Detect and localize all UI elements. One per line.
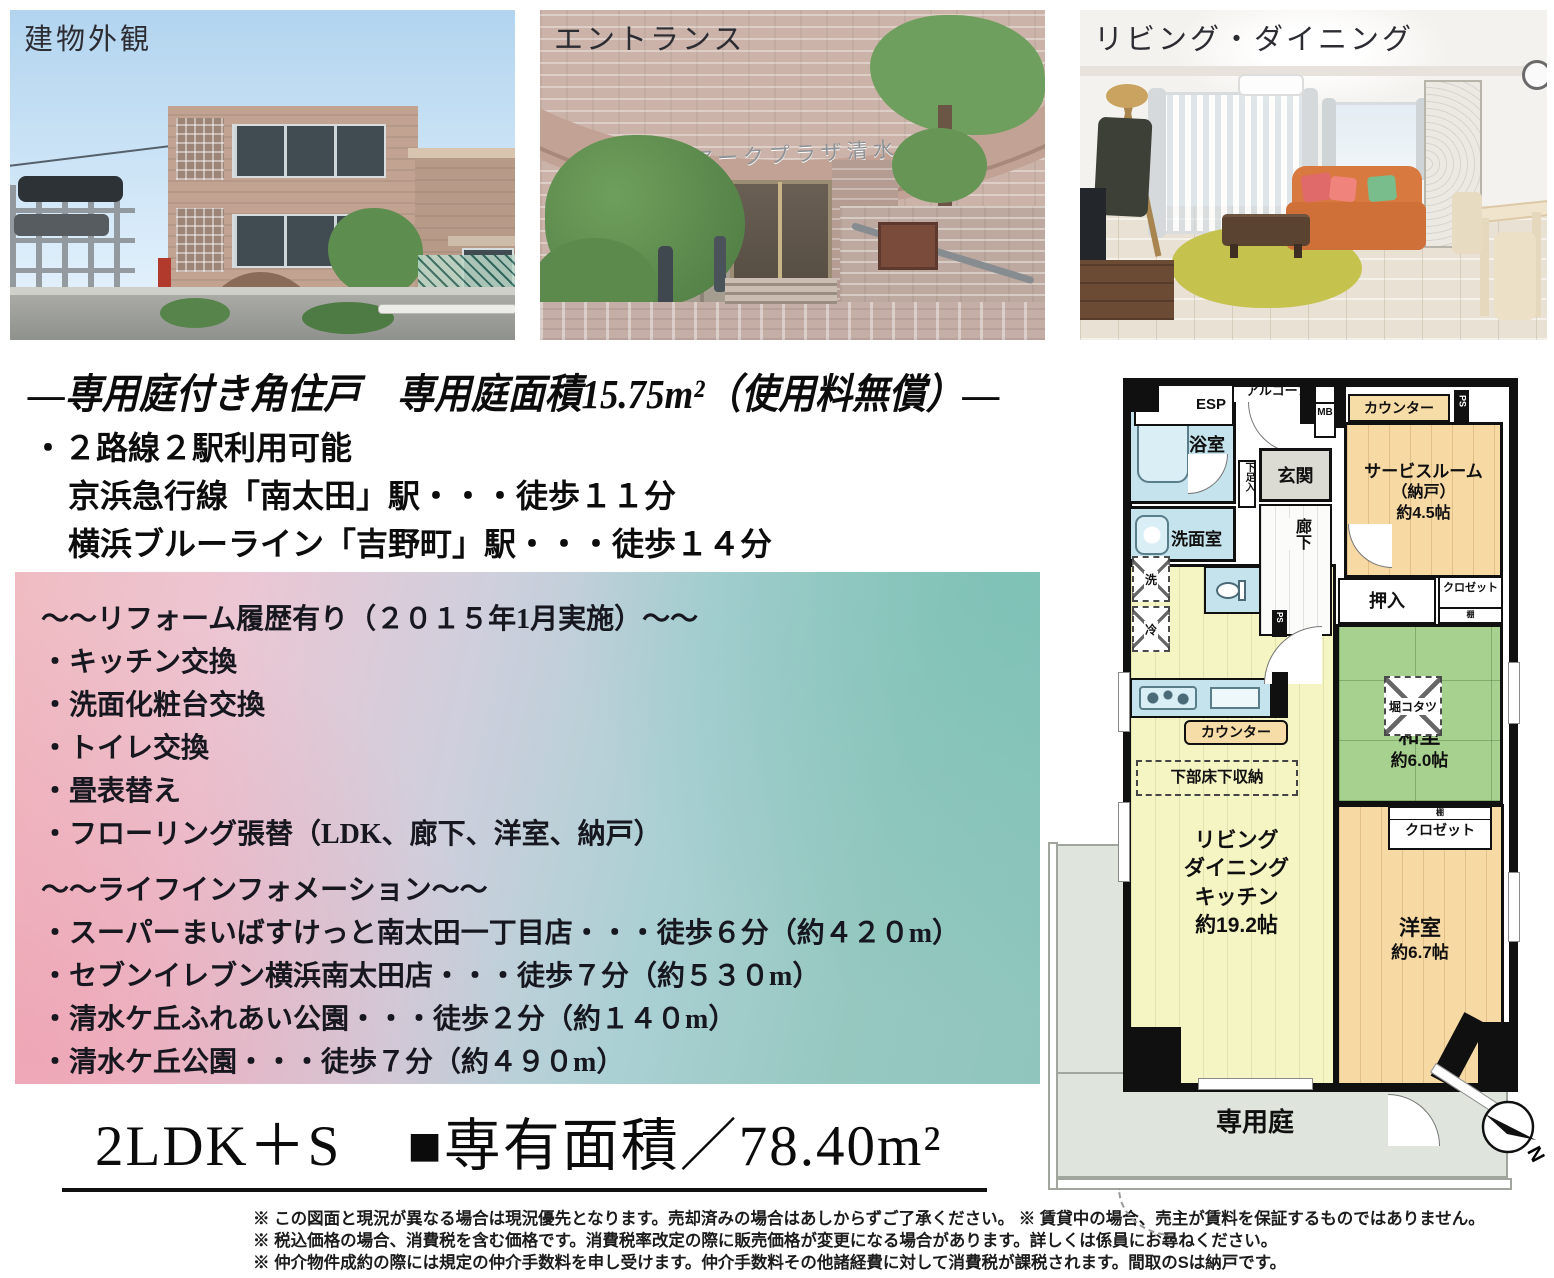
lattice-panel bbox=[176, 118, 224, 180]
steps bbox=[725, 278, 837, 304]
hat bbox=[1106, 84, 1148, 108]
bush bbox=[160, 298, 230, 328]
ldk-label: ダイニング bbox=[1149, 855, 1324, 883]
window-gap bbox=[1118, 672, 1130, 732]
dining-chair bbox=[1452, 192, 1482, 254]
wall-segment bbox=[1478, 1022, 1518, 1089]
oshiire-closet: 押入 bbox=[1338, 578, 1436, 624]
compass: N bbox=[1476, 1098, 1546, 1168]
window-gap bbox=[1508, 872, 1520, 942]
reform-item: ・フローリング張替（LDK、廊下、洋室、納戸） bbox=[41, 813, 1040, 856]
guardrail bbox=[378, 304, 515, 314]
private-garden bbox=[1056, 844, 1126, 1090]
western-room-label: 洋室 bbox=[1339, 915, 1501, 942]
ldk-label: キッチン bbox=[1149, 884, 1324, 912]
closet-shelf: 棚 bbox=[1390, 808, 1490, 820]
access-info: ・２路線２駅利用可能 京浜急行線「南太田」駅・・・徒歩１１分 横浜ブルーライン「… bbox=[32, 424, 772, 568]
western-room-label: 約6.7帖 bbox=[1339, 942, 1501, 964]
room-entrance: 玄関 bbox=[1259, 448, 1332, 502]
wall-segment bbox=[1123, 378, 1159, 412]
sink-icon bbox=[1210, 687, 1260, 709]
toilet-tank-icon bbox=[1238, 580, 1246, 601]
parked-car bbox=[14, 214, 109, 236]
pipe-shaft: PS bbox=[1272, 610, 1287, 637]
wall-segment bbox=[1334, 378, 1346, 428]
fridge-space: 冷 bbox=[1132, 606, 1170, 652]
garden-label: 専用庭 bbox=[1216, 1102, 1294, 1139]
access-line: 横浜ブルーライン「吉野町」駅・・・徒歩１４分 bbox=[32, 520, 772, 568]
bush bbox=[892, 128, 987, 203]
wall-segment bbox=[1272, 672, 1288, 718]
life-title: ～～ライフインフォメーション～～ bbox=[41, 869, 1040, 912]
dining-chair bbox=[1494, 232, 1536, 320]
closet-lower: 棚 クロゼット bbox=[1388, 806, 1492, 850]
service-room-label: サービスルーム bbox=[1347, 461, 1500, 483]
shoe-box: 下足入 bbox=[1238, 460, 1256, 508]
cushion bbox=[1329, 176, 1357, 203]
closet-upper: クロゼット 棚 bbox=[1438, 576, 1503, 624]
kotatsu: 堀コタツ bbox=[1384, 676, 1442, 736]
meter-box: MB bbox=[1314, 402, 1336, 438]
reform-item: ・畳表替え bbox=[41, 770, 1040, 813]
wall-segment bbox=[1123, 1027, 1181, 1089]
kitchen-counter bbox=[1130, 678, 1272, 718]
ldk-label: 約19.2帖 bbox=[1149, 912, 1324, 940]
life-item: ・スーパーまいばすけっと南太田一丁目店・・・徒歩６分（約４２０m） bbox=[41, 912, 1040, 955]
reform-title: ～～リフォーム履歴有り（２０１５年1月実施）～～ bbox=[41, 598, 1040, 641]
disclaimer-line: ※ 税込価格の場合、消費税を含む価格です。消費税率改定の際に販売価格が変更になる… bbox=[253, 1230, 1485, 1252]
layout-type: 2LDK＋S bbox=[95, 1115, 341, 1178]
window-small bbox=[1330, 102, 1422, 174]
roof-eave bbox=[408, 148, 515, 158]
closet-shelf: 棚 bbox=[1440, 607, 1501, 622]
service-room-counter: カウンター bbox=[1348, 394, 1450, 422]
exclusive-area: ■専有面積／78.40m² bbox=[407, 1115, 942, 1178]
road bbox=[10, 294, 515, 340]
summary-underline bbox=[62, 1188, 987, 1192]
info-box: ～～リフォーム履歴有り（２０１５年1月実施）～～ ・キッチン交換 ・洗面化粧台交… bbox=[15, 572, 1040, 1084]
disclaimer-line: ※ 仲介物件成約の際には規定の仲介手数料を申し受けます。仲介手数料その他諸経費に… bbox=[253, 1252, 1485, 1274]
stove-icon bbox=[1139, 686, 1197, 710]
ldk-label: リビング bbox=[1149, 827, 1324, 855]
garden-boundary-wall bbox=[1048, 842, 1058, 1190]
reform-item: ・キッチン交換 bbox=[41, 641, 1040, 684]
garden-gate-arc bbox=[1118, 1188, 1173, 1236]
pavement bbox=[540, 302, 1045, 340]
reform-item: ・トイレ交換 bbox=[41, 727, 1040, 770]
wall-clock bbox=[1522, 60, 1547, 90]
cushion bbox=[1367, 175, 1397, 202]
compass-north-label: N bbox=[1522, 1143, 1546, 1166]
photo-building-exterior: 建物外観 bbox=[10, 10, 515, 340]
photo-label: 建物外観 bbox=[24, 16, 152, 58]
life-item: ・セブンイレブン横浜南太田店・・・徒歩７分（約５３０m） bbox=[41, 955, 1040, 998]
air-conditioner bbox=[1238, 74, 1304, 96]
name-plate bbox=[878, 222, 938, 270]
table-leg bbox=[1294, 244, 1302, 258]
window-row bbox=[232, 124, 386, 178]
photo-label: エントランス bbox=[554, 16, 745, 58]
toilet-icon bbox=[1216, 582, 1240, 599]
japanese-room-label: 約6.0帖 bbox=[1339, 750, 1500, 772]
headline: ―専用庭付き角住戸 専用庭面積15.75m²（使用料無償）― bbox=[28, 360, 999, 420]
service-room-label: （納戸） bbox=[1347, 483, 1500, 504]
car-lift bbox=[10, 185, 135, 303]
property-flyer: 建物外観 アークプラザ清水ヶ丘 エントランス bbox=[0, 0, 1554, 1278]
corridor: 廊下 bbox=[1259, 504, 1332, 636]
window-gap bbox=[1508, 662, 1520, 724]
life-item: ・清水ケ丘公園・・・徒歩７分（約４９０m） bbox=[41, 1041, 1040, 1084]
kitchen-counter-label: カウンター bbox=[1184, 720, 1288, 745]
photo-label: リビング・ダイニング bbox=[1094, 16, 1414, 58]
table-leg bbox=[1230, 244, 1238, 258]
window-gap bbox=[1198, 1078, 1313, 1090]
parked-car bbox=[18, 176, 123, 202]
sink-basin-icon bbox=[1135, 515, 1169, 555]
room-washroom: 洗面室 bbox=[1128, 506, 1236, 562]
floor-plan: 専用庭 リビング ダイニング キッチン 約19.2帖 カウンター 下部床下収納 bbox=[1048, 372, 1554, 1232]
cushion bbox=[1300, 172, 1333, 203]
service-room-label: 約4.5帖 bbox=[1347, 504, 1500, 525]
underfloor-storage: 下部床下収納 bbox=[1136, 760, 1298, 796]
lattice-panel bbox=[176, 208, 224, 272]
reform-item: ・洗面化粧台交換 bbox=[41, 684, 1040, 727]
balcony bbox=[448, 236, 515, 246]
tv-stand bbox=[1080, 260, 1174, 320]
photo-living-dining: リビング・ダイニング bbox=[1080, 10, 1547, 340]
access-line: 京浜急行線「南太田」駅・・・徒歩１１分 bbox=[32, 472, 772, 520]
ceiling-beam bbox=[1080, 66, 1547, 76]
summary: 2LDK＋S■専有面積／78.40m² bbox=[95, 1100, 942, 1182]
washer-space: 洗 bbox=[1132, 556, 1170, 602]
life-item: ・清水ケ丘ふれあい公園・・・徒歩２分（約１４０m） bbox=[41, 998, 1040, 1041]
window-gap bbox=[1118, 802, 1130, 882]
washroom-label: 洗面室 bbox=[1171, 525, 1222, 550]
pipe-shaft: PS bbox=[1454, 390, 1469, 426]
curb bbox=[10, 287, 515, 295]
access-line: ・２路線２駅利用可能 bbox=[32, 424, 772, 472]
coffee-table bbox=[1222, 214, 1310, 246]
photo-entrance: アークプラザ清水ヶ丘 エントランス bbox=[540, 10, 1045, 340]
wall-segment bbox=[1300, 378, 1316, 424]
